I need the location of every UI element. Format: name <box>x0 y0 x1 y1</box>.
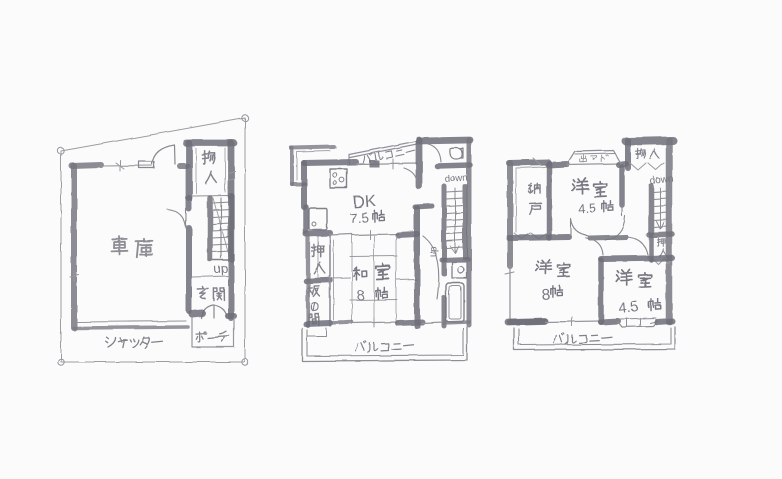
svg-text:7.5: 7.5 <box>349 210 369 226</box>
svg-text:up: up <box>428 245 439 257</box>
svg-text:4.5: 4.5 <box>618 299 640 317</box>
svg-text:4.5: 4.5 <box>577 200 596 216</box>
svg-text:8: 8 <box>356 286 365 303</box>
svg-text:up: up <box>213 261 228 276</box>
svg-text:DK: DK <box>352 191 378 212</box>
svg-text:8: 8 <box>541 286 551 304</box>
svg-text:down: down <box>444 172 467 185</box>
